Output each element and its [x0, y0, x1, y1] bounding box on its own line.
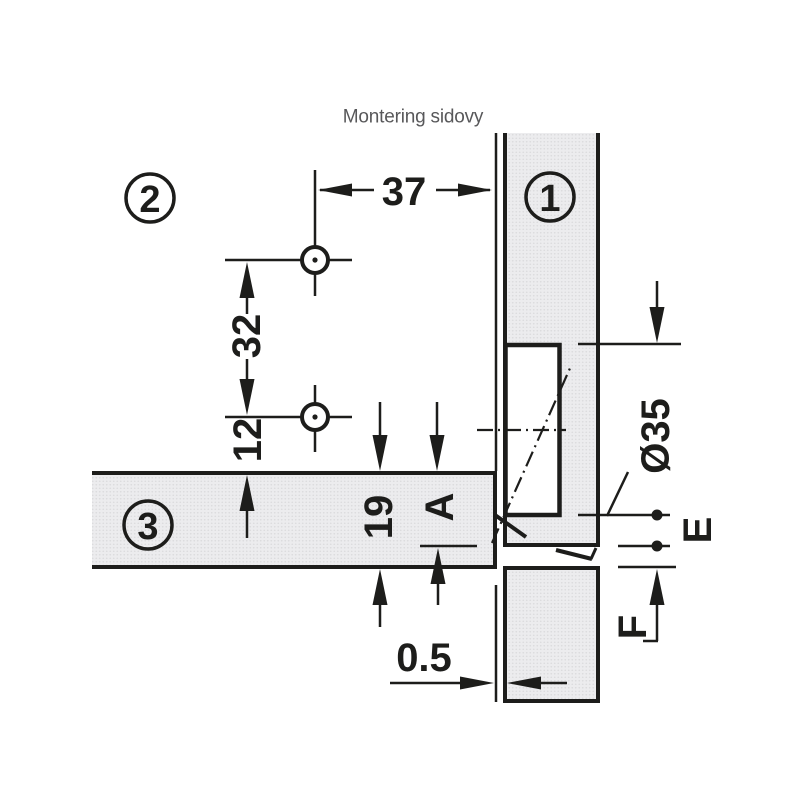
drawing-title: Montering sidovy: [343, 107, 484, 128]
arrow-down-icon: [240, 379, 255, 415]
part-number-2: 2: [139, 179, 160, 221]
dim-text-12: 12: [226, 418, 270, 463]
arrow-right-icon: [460, 677, 494, 690]
dim-text-A: A: [418, 493, 462, 522]
arrow-down-icon: [373, 435, 388, 471]
part-number-1: 1: [539, 178, 560, 220]
arrow-up-icon: [650, 569, 665, 605]
arrow-down-icon: [650, 307, 665, 343]
dim-text-32: 32: [225, 314, 269, 359]
hinge-arm-tick: [591, 548, 596, 559]
mounting-side-view-diagram: Montering sidovy 1 2 3: [0, 0, 800, 800]
leader-line: [607, 472, 628, 516]
dimension-37: 37: [318, 170, 492, 214]
hole-center-dot: [312, 414, 317, 419]
dim-text-37: 37: [382, 170, 427, 214]
arrow-up-icon: [240, 262, 255, 298]
arrow-right-icon: [458, 184, 492, 197]
dim-dot-icon: [652, 541, 663, 552]
hole-center-dot: [312, 257, 317, 262]
arrow-up-icon: [373, 569, 388, 605]
dim-text-19: 19: [357, 495, 401, 540]
dimension-32: 32: [225, 262, 269, 415]
part-balloon-door: 1: [526, 173, 574, 221]
dim-text-F: F: [611, 615, 655, 639]
dimension-F: F: [611, 567, 676, 641]
hinge-arm-stroke: [556, 550, 592, 559]
dim-text-E: E: [676, 517, 720, 544]
dim-text-cup-diameter: Ø35: [634, 398, 678, 474]
dimension-19: 19: [357, 402, 401, 627]
dim-dot-icon: [652, 510, 663, 521]
arrow-left-icon: [318, 184, 352, 197]
part-balloon-cabinet: 2: [126, 174, 174, 222]
technical-drawing-canvas: Montering sidovy 1 2 3: [0, 0, 800, 800]
part-number-3: 3: [137, 506, 158, 548]
arrow-down-icon: [430, 435, 445, 471]
dim-text-0-5: 0.5: [396, 636, 452, 680]
